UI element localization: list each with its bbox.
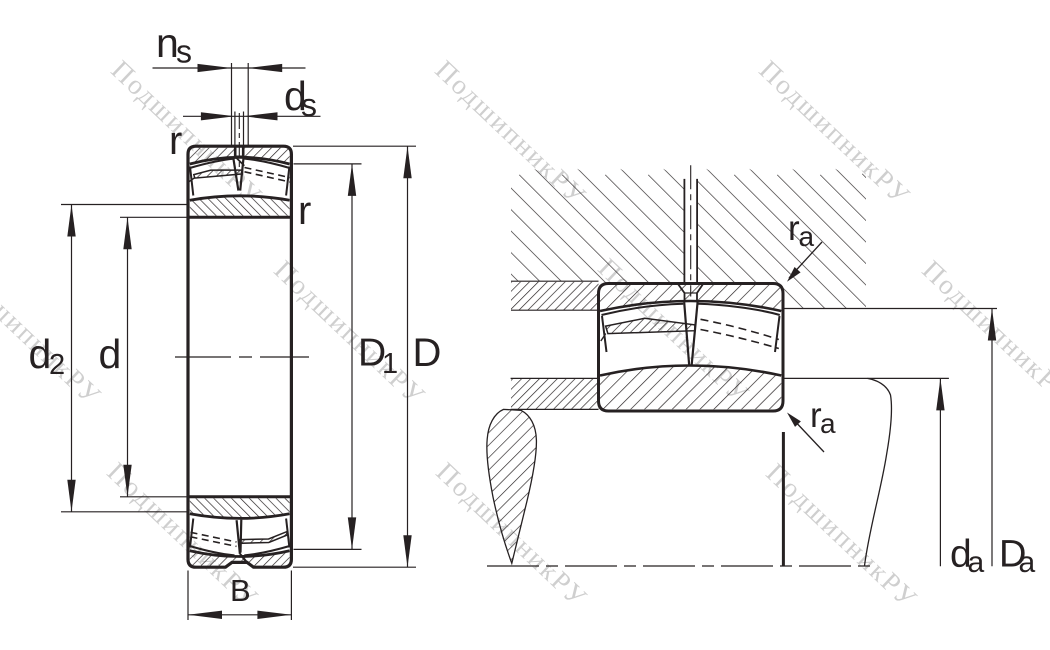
- svg-text:a: a: [1019, 546, 1036, 579]
- svg-text:a: a: [799, 221, 815, 252]
- svg-text:a: a: [968, 546, 985, 579]
- svg-text:a: a: [820, 408, 836, 439]
- svg-text:s: s: [301, 87, 317, 123]
- svg-text:r: r: [298, 189, 311, 233]
- svg-text:1: 1: [382, 348, 398, 380]
- svg-text:s: s: [176, 34, 192, 70]
- svg-text:2: 2: [49, 349, 65, 381]
- svg-text:D: D: [413, 331, 442, 375]
- svg-text:r: r: [169, 119, 182, 163]
- svg-text:d: d: [99, 331, 122, 377]
- svg-text:B: B: [230, 573, 251, 608]
- svg-text:d: d: [29, 331, 52, 377]
